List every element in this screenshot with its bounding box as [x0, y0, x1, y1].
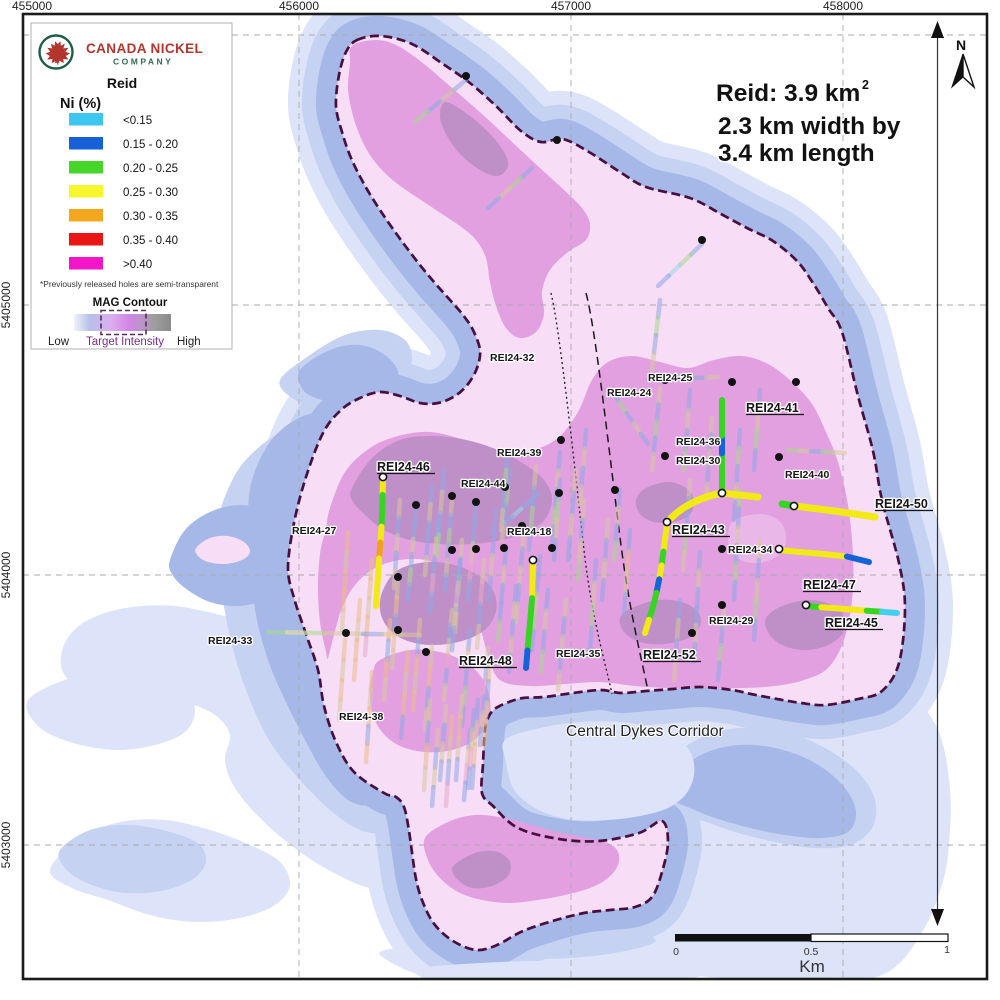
- svg-text:REI24-34: REI24-34: [728, 544, 773, 556]
- svg-text:458000: 458000: [823, 0, 863, 13]
- svg-text:REI24-38: REI24-38: [339, 711, 384, 723]
- svg-text:REI24-35: REI24-35: [556, 648, 601, 660]
- svg-text:457000: 457000: [551, 0, 591, 13]
- svg-text:REI24-43: REI24-43: [672, 523, 725, 537]
- svg-text:3.4 km length: 3.4 km length: [718, 140, 875, 167]
- svg-text:Low: Low: [48, 336, 70, 348]
- svg-text:5405000: 5405000: [0, 281, 13, 328]
- svg-text:<0.15: <0.15: [123, 115, 152, 127]
- svg-text:N: N: [956, 37, 966, 53]
- svg-text:REI24-41: REI24-41: [746, 401, 799, 415]
- svg-text:REI24-45: REI24-45: [825, 616, 878, 630]
- svg-text:Reid: 3.9 km: Reid: 3.9 km: [716, 80, 860, 107]
- svg-text:Reid: Reid: [107, 75, 137, 91]
- svg-text:REI24-33: REI24-33: [208, 635, 253, 647]
- svg-text:>0.40: >0.40: [123, 259, 152, 271]
- svg-text:COMPANY: COMPANY: [113, 57, 173, 67]
- svg-text:Ni (%): Ni (%): [60, 96, 101, 112]
- svg-text:MAG Contour: MAG Contour: [93, 297, 168, 309]
- svg-text:CANADA NICKEL: CANADA NICKEL: [86, 41, 203, 56]
- svg-text:0.15 - 0.20: 0.15 - 0.20: [123, 139, 178, 151]
- svg-text:REI24-52: REI24-52: [643, 648, 696, 662]
- svg-text:0.25 - 0.30: 0.25 - 0.30: [123, 187, 178, 199]
- svg-text:2: 2: [862, 78, 869, 92]
- svg-text:0.30 - 0.35: 0.30 - 0.35: [123, 211, 178, 223]
- svg-text:REI24-47: REI24-47: [803, 578, 856, 592]
- svg-text:456000: 456000: [279, 0, 319, 13]
- svg-text:REI24-48: REI24-48: [459, 654, 512, 668]
- svg-text:REI24-39: REI24-39: [497, 447, 542, 459]
- svg-text:REI24-30: REI24-30: [676, 455, 721, 467]
- svg-text:Target Intensity: Target Intensity: [86, 336, 164, 348]
- svg-text:REI24-50: REI24-50: [875, 497, 928, 511]
- svg-text:0.35 - 0.40: 0.35 - 0.40: [123, 235, 178, 247]
- svg-text:High: High: [177, 336, 201, 348]
- svg-text:5404000: 5404000: [0, 551, 13, 598]
- svg-text:0: 0: [673, 946, 679, 958]
- svg-text:REI24-40: REI24-40: [785, 469, 830, 481]
- svg-text:REI24-32: REI24-32: [490, 352, 535, 364]
- svg-text:REI24-24: REI24-24: [607, 387, 652, 399]
- svg-text:5403000: 5403000: [0, 821, 13, 868]
- svg-text:REI24-27: REI24-27: [292, 525, 337, 537]
- svg-text:REI24-29: REI24-29: [709, 615, 754, 627]
- svg-text:REI24-18: REI24-18: [507, 526, 552, 538]
- svg-text:REI24-36: REI24-36: [676, 436, 721, 448]
- svg-text:455000: 455000: [12, 0, 52, 13]
- svg-text:Central Dykes Corridor: Central Dykes Corridor: [566, 723, 724, 740]
- svg-text:2.3 km width by: 2.3 km width by: [718, 113, 901, 140]
- svg-text:REI24-25: REI24-25: [648, 372, 693, 384]
- svg-text:REI24-44: REI24-44: [461, 478, 506, 490]
- svg-text:Km: Km: [799, 957, 825, 976]
- svg-text:1: 1: [944, 944, 950, 956]
- svg-text:0.20 - 0.25: 0.20 - 0.25: [123, 163, 178, 175]
- svg-text:*Previously released holes are: *Previously released holes are semi-tran…: [40, 279, 219, 289]
- svg-text:REI24-46: REI24-46: [377, 460, 430, 474]
